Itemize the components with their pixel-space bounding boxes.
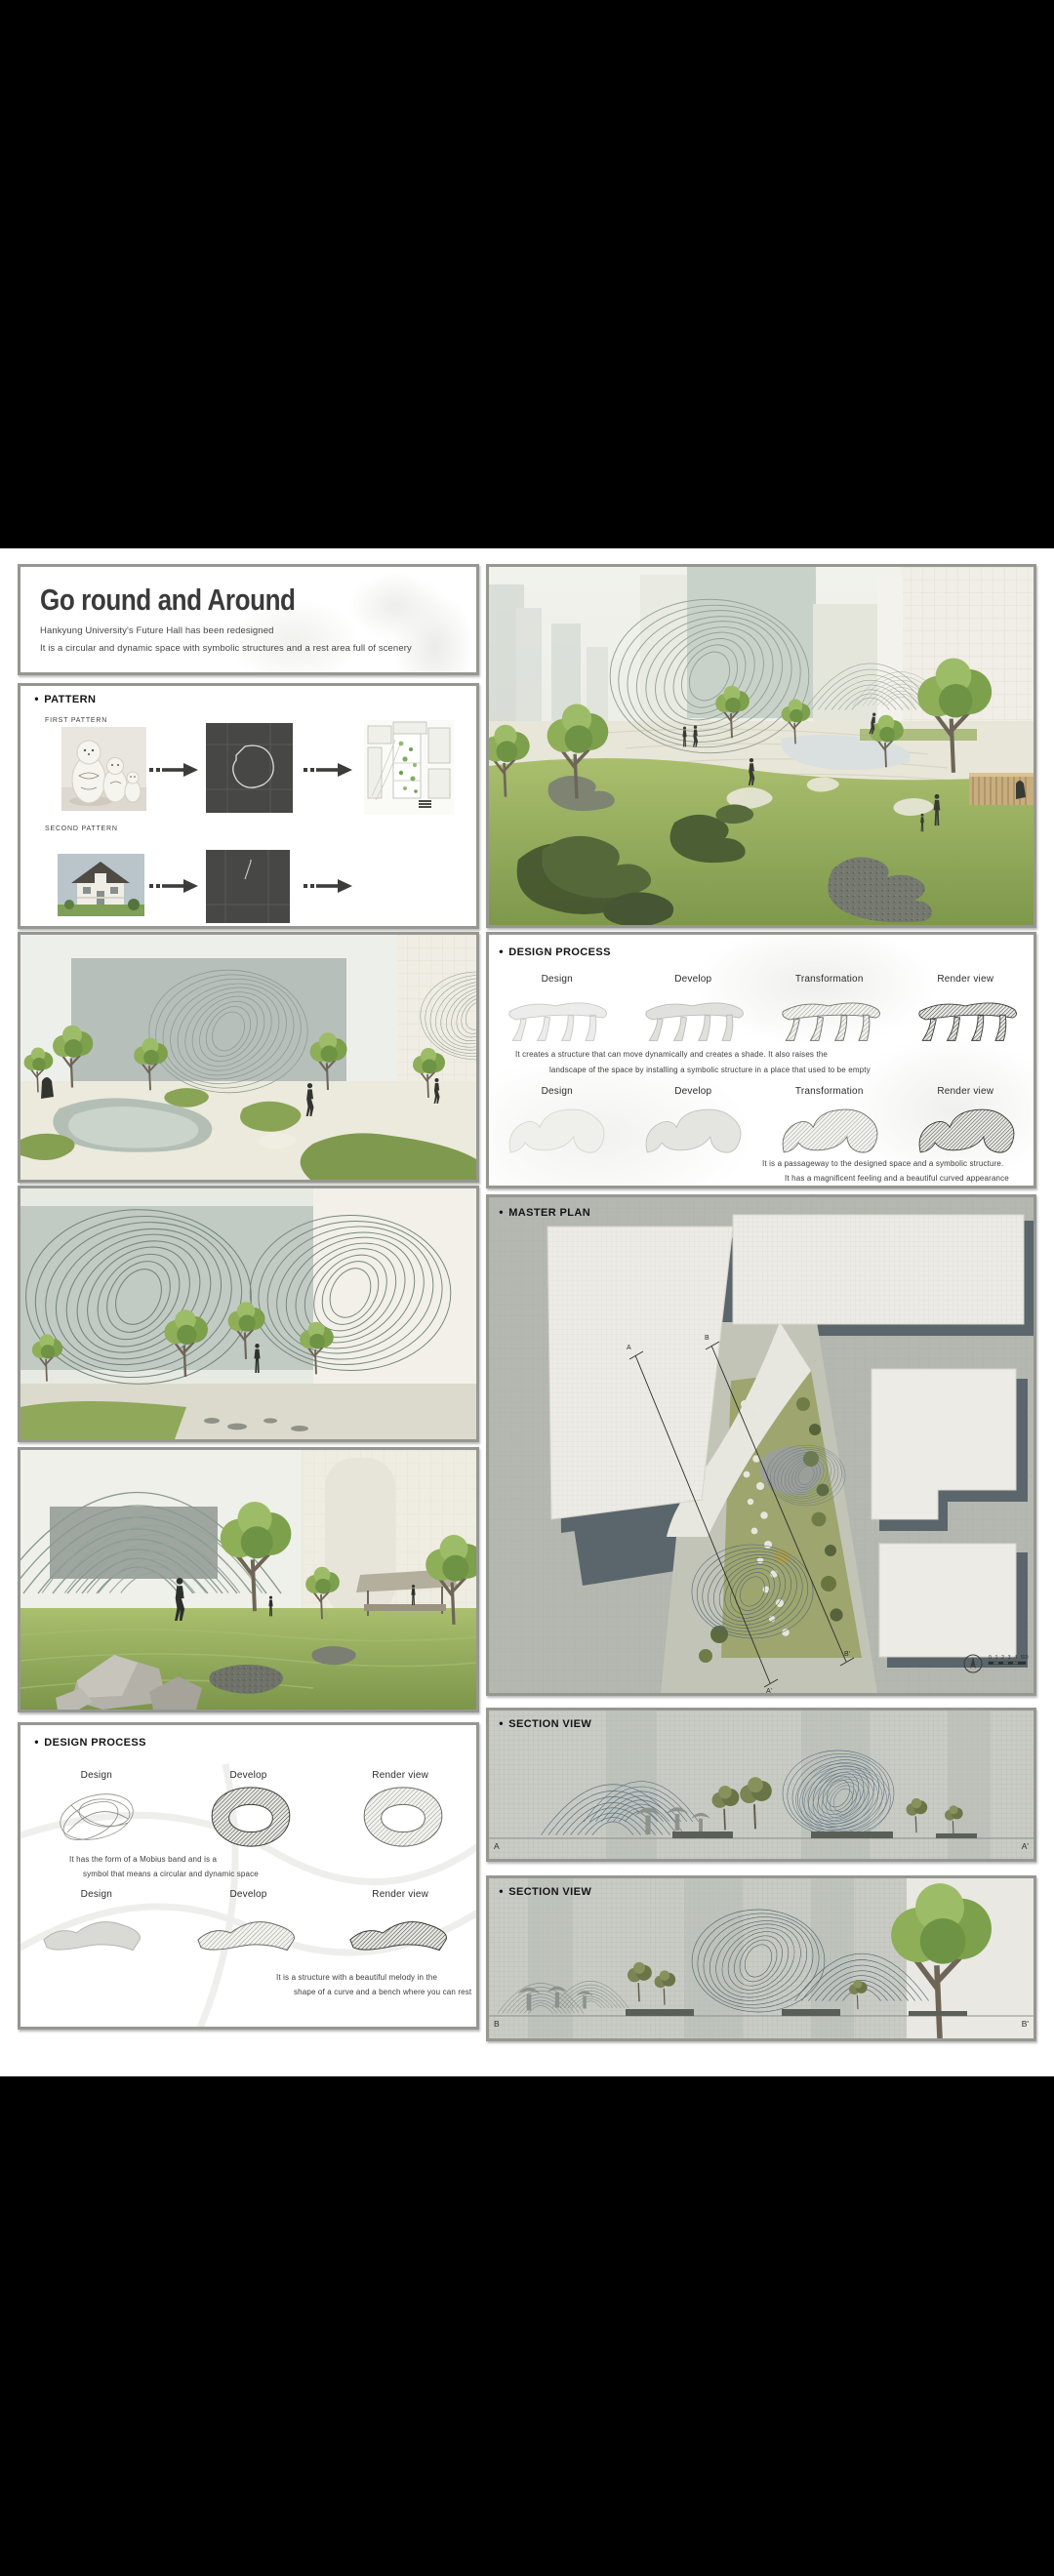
design-process-header-label: DESIGN PROCESS — [44, 1737, 146, 1749]
step-label: Design — [20, 1770, 173, 1781]
arrow-icon — [304, 763, 352, 777]
bullet-icon: ● — [499, 1720, 504, 1728]
step-label: Render view — [324, 1889, 476, 1900]
cad-outline-first — [206, 723, 293, 813]
phone-screen: Go round and Around Hankyung University'… — [0, 0, 1054, 2576]
step-label: Design — [489, 1086, 626, 1097]
process-row2-shapes — [489, 1097, 1034, 1159]
process-row1-shapes — [489, 987, 1034, 1048]
subtitle-line-1: Hankyung University's Future Hall has be… — [40, 625, 273, 636]
design-process-right-panel: ● DESIGN PROCESS Design Develop Transfor… — [486, 932, 1036, 1188]
process-row1-labels: Design Develop Transformation Render vie… — [489, 974, 1034, 985]
step-label: Transformation — [761, 974, 898, 985]
pavilion-render-panel — [18, 1186, 479, 1442]
title-panel: Go round and Around Hankyung University'… — [18, 564, 479, 675]
process-row2-caption-2: It has a magnificent feeling and a beaut… — [785, 1174, 1009, 1183]
section-view-1-panel: ● SECTION VIEW A A' — [486, 1708, 1036, 1862]
process-row1-caption-2: landscape of the space by installing a s… — [549, 1066, 871, 1074]
letterbox-top — [0, 0, 1054, 548]
process-rowA-caption-1: It has the form of a Mobius band and is … — [69, 1855, 217, 1864]
process-rowB-shapes — [20, 1903, 476, 1961]
poster-board: Go round and Around Hankyung University'… — [0, 548, 1054, 2076]
process-rowA-caption-2: symbol that means a circular and dynamic… — [83, 1870, 259, 1878]
cut-mark: B' — [844, 1651, 850, 1658]
step-label: Develop — [173, 1889, 325, 1900]
step-label: Render view — [898, 974, 1034, 985]
bullet-icon: ● — [34, 1739, 39, 1747]
walk-render-image — [20, 1450, 476, 1710]
page-title: Go round and Around — [40, 583, 296, 618]
arrow-icon — [149, 763, 198, 777]
section-mark-right: A' — [1022, 1841, 1029, 1851]
section-mark-left: A — [494, 1841, 500, 1851]
cut-mark: B — [705, 1335, 709, 1342]
design-process-header: ● DESIGN PROCESS — [34, 1737, 146, 1749]
letterbox-bottom — [0, 2076, 1054, 2576]
section-view-2-drawing — [489, 1878, 1034, 2038]
step-label: Design — [20, 1889, 173, 1900]
matryoshka-photo — [61, 727, 146, 811]
second-pattern-label: SECOND PATTERN — [45, 825, 118, 832]
design-process-left-panel: ● DESIGN PROCESS Design Develop Render v… — [18, 1722, 479, 2030]
process-row2-caption-1: It is a passageway to the designed space… — [762, 1159, 1003, 1168]
pattern-panel: ● PATTERN FIRST PATTERN — [18, 683, 479, 929]
hero-render-image — [489, 567, 1034, 925]
step-label: Develop — [173, 1770, 325, 1781]
process-rowA-shapes — [20, 1782, 476, 1852]
plaza-render-panel — [18, 932, 479, 1183]
arrow-icon — [149, 879, 198, 893]
master-plan-drawing: A A' B B' 0 1 2 3 4 5 10 — [489, 1197, 1034, 1693]
section-view-header-label: SECTION VIEW — [508, 1718, 591, 1730]
section-view-header: ● SECTION VIEW — [499, 1886, 591, 1898]
house-photo — [58, 854, 144, 916]
process-rowB-caption-1: It is a structure with a beautiful melod… — [276, 1973, 437, 1982]
arrow-icon — [304, 879, 352, 893]
process-rowB-caption-2: shape of a curve and a bench where you c… — [294, 1988, 471, 1996]
cad-outline-second — [206, 850, 290, 923]
svg-text:0 1 2 3 4 5: 0 1 2 3 4 5 — [989, 1655, 1025, 1661]
step-label: Transformation — [761, 1086, 898, 1097]
design-process-header-label: DESIGN PROCESS — [508, 946, 611, 958]
section-view-header-label: SECTION VIEW — [508, 1886, 591, 1898]
bullet-icon: ● — [499, 948, 504, 956]
step-label: Render view — [324, 1770, 476, 1781]
walk-render-panel — [18, 1447, 479, 1712]
step-label: Develop — [626, 1086, 762, 1097]
sketch-scribble — [56, 1787, 138, 1847]
step-label: Design — [489, 974, 626, 985]
cut-mark: A — [627, 1345, 631, 1351]
design-process-header: ● DESIGN PROCESS — [499, 946, 611, 958]
pattern-header: ● PATTERN — [34, 694, 96, 705]
hero-render-panel — [486, 564, 1036, 928]
subtitle-line-2: It is a circular and dynamic space with … — [40, 643, 412, 654]
master-plan-panel: A A' B B' 0 1 2 3 4 5 10 ● MASTER PLA — [486, 1194, 1036, 1696]
bullet-icon: ● — [499, 1888, 504, 1896]
bullet-icon: ● — [34, 696, 39, 704]
svg-text:10: 10 — [1023, 1655, 1029, 1661]
cut-mark: A' — [766, 1688, 772, 1693]
bullet-icon: ● — [499, 1209, 504, 1217]
step-label: Render view — [898, 1086, 1034, 1097]
master-plan-header-label: MASTER PLAN — [508, 1207, 590, 1219]
master-plan-header: ● MASTER PLAN — [499, 1207, 590, 1219]
process-row2-labels: Design Develop Transformation Render vie… — [489, 1086, 1034, 1097]
section-mark-right: B' — [1022, 2019, 1029, 2029]
process-rowB-labels: Design Develop Render view — [20, 1889, 476, 1900]
section-mark-left: B — [494, 2019, 500, 2029]
site-plan-thumbnail — [364, 720, 454, 815]
section-view-header: ● SECTION VIEW — [499, 1718, 591, 1730]
pavilion-render-image — [20, 1188, 476, 1439]
section-view-1-drawing — [489, 1711, 1034, 1859]
process-row1-caption-1: It creates a structure that can move dyn… — [515, 1050, 828, 1059]
plaza-render-image — [20, 935, 476, 1180]
first-pattern-label: FIRST PATTERN — [45, 717, 107, 724]
pattern-header-label: PATTERN — [44, 694, 96, 705]
section-view-2-panel: ● SECTION VIEW B B' — [486, 1875, 1036, 2041]
step-label: Develop — [626, 974, 762, 985]
process-rowA-labels: Design Develop Render view — [20, 1770, 476, 1781]
